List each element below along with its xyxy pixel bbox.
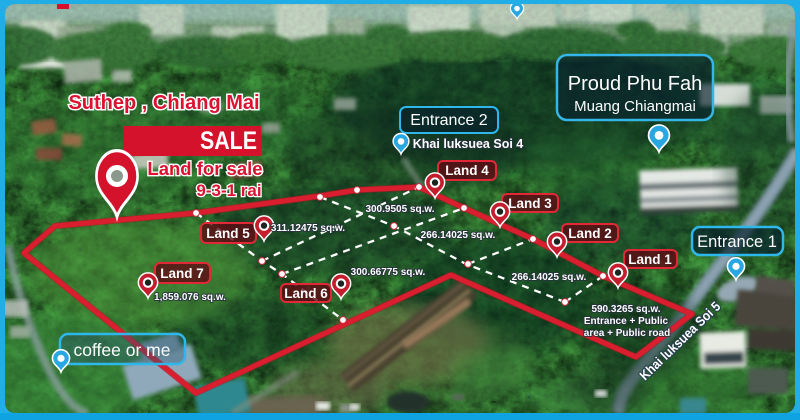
- svg-text:Land 6: Land 6: [284, 286, 328, 301]
- svg-text:Land for sale: Land for sale: [147, 158, 262, 179]
- svg-text:Land 1: Land 1: [628, 252, 672, 267]
- svg-text:9-3-1 rai: 9-3-1 rai: [196, 181, 261, 200]
- svg-text:Khai luksuea Soi 4: Khai luksuea Soi 4: [413, 137, 524, 151]
- svg-text:Entrance 1: Entrance 1: [697, 233, 777, 251]
- svg-text:311.12475 sq.w.: 311.12475 sq.w.: [271, 223, 345, 234]
- svg-text:Land 2: Land 2: [568, 226, 612, 241]
- svg-text:Land 7: Land 7: [160, 266, 204, 281]
- svg-text:Land 4: Land 4: [445, 163, 489, 178]
- svg-text:SALE: SALE: [200, 127, 257, 155]
- svg-text:coffee or me: coffee or me: [74, 340, 171, 360]
- svg-text:590.3265 sq.w.: 590.3265 sq.w.: [591, 304, 660, 315]
- svg-text:Entrance 2: Entrance 2: [410, 112, 487, 129]
- svg-text:Muang Chiangmai: Muang Chiangmai: [574, 98, 696, 115]
- svg-text:Entrance + Public: Entrance + Public: [584, 316, 669, 327]
- svg-text:1,859.076 sq.w.: 1,859.076 sq.w.: [154, 292, 226, 303]
- svg-text:Land 3: Land 3: [508, 196, 552, 211]
- svg-text:Suthep , Chiang Mai: Suthep , Chiang Mai: [68, 92, 259, 114]
- svg-text:300.9505 sq.w.: 300.9505 sq.w.: [365, 204, 434, 215]
- svg-text:area + Public road: area + Public road: [584, 328, 670, 339]
- svg-text:266.14025 sq.w.: 266.14025 sq.w.: [512, 272, 587, 283]
- svg-text:Land 5: Land 5: [206, 226, 250, 241]
- svg-text:Proud Phu Fah: Proud Phu Fah: [568, 73, 703, 95]
- svg-text:266.14025 sq.w.: 266.14025 sq.w.: [421, 230, 496, 241]
- svg-text:300.66775 sq.w.: 300.66775 sq.w.: [351, 267, 426, 278]
